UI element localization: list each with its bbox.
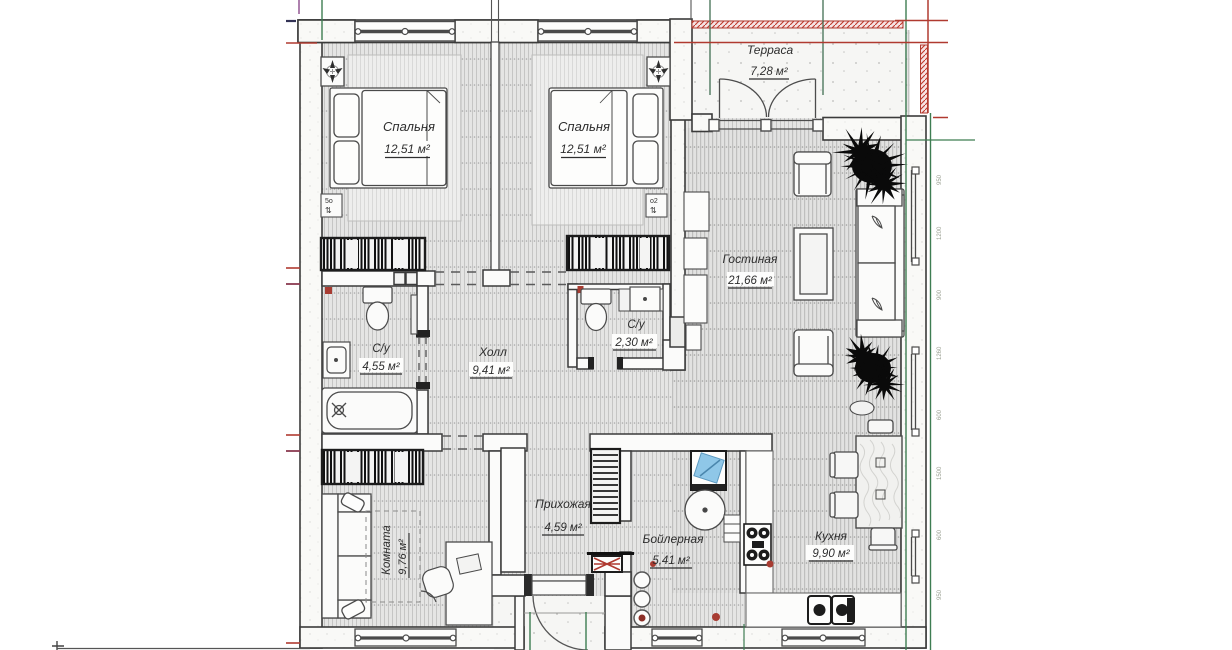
svg-text:9,76 м²: 9,76 м²	[397, 539, 409, 575]
svg-text:600: 600	[937, 529, 943, 540]
svg-text:21,66 м²: 21,66 м²	[727, 275, 773, 287]
svg-text:Гостиная: Гостиная	[723, 252, 778, 266]
svg-text:Спальня: Спальня	[383, 119, 435, 134]
svg-text:Прихожая: Прихожая	[535, 497, 591, 511]
svg-text:4,59 м²: 4,59 м²	[544, 522, 582, 534]
svg-text:Холл: Холл	[478, 345, 507, 359]
svg-text:⇅: ⇅	[325, 206, 332, 215]
svg-text:900: 900	[937, 289, 943, 300]
svg-text:4,55 м²: 4,55 м²	[362, 361, 400, 373]
svg-text:1260: 1260	[937, 346, 943, 360]
svg-text:9,90 м²: 9,90 м²	[812, 548, 850, 560]
svg-text:Спальня: Спальня	[558, 119, 610, 134]
svg-text:9,41 м²: 9,41 м²	[472, 365, 510, 377]
svg-text:950: 950	[937, 174, 943, 185]
svg-text:1200: 1200	[937, 226, 943, 240]
svg-text:5,41 м²: 5,41 м²	[652, 555, 690, 567]
svg-text:12,51 м²: 12,51 м²	[384, 142, 431, 156]
svg-text:Терраса: Терраса	[747, 43, 794, 57]
svg-text:С/у: С/у	[372, 343, 391, 355]
svg-text:600: 600	[937, 409, 943, 420]
svg-text:950: 950	[937, 589, 943, 600]
svg-text:7,28 м²: 7,28 м²	[750, 66, 788, 78]
svg-text:Бойлерная: Бойлерная	[643, 532, 705, 546]
svg-text:o2: o2	[650, 198, 658, 205]
svg-text:1500: 1500	[937, 466, 943, 480]
svg-text:2,30 м²: 2,30 м²	[614, 337, 653, 349]
svg-text:⇅: ⇅	[650, 206, 657, 215]
svg-text:5o: 5o	[325, 198, 333, 205]
svg-text:12,51 м²: 12,51 м²	[560, 142, 607, 156]
svg-text:Комната: Комната	[381, 525, 393, 575]
svg-text:С/у: С/у	[627, 319, 646, 331]
svg-text:Кухня: Кухня	[815, 529, 848, 543]
